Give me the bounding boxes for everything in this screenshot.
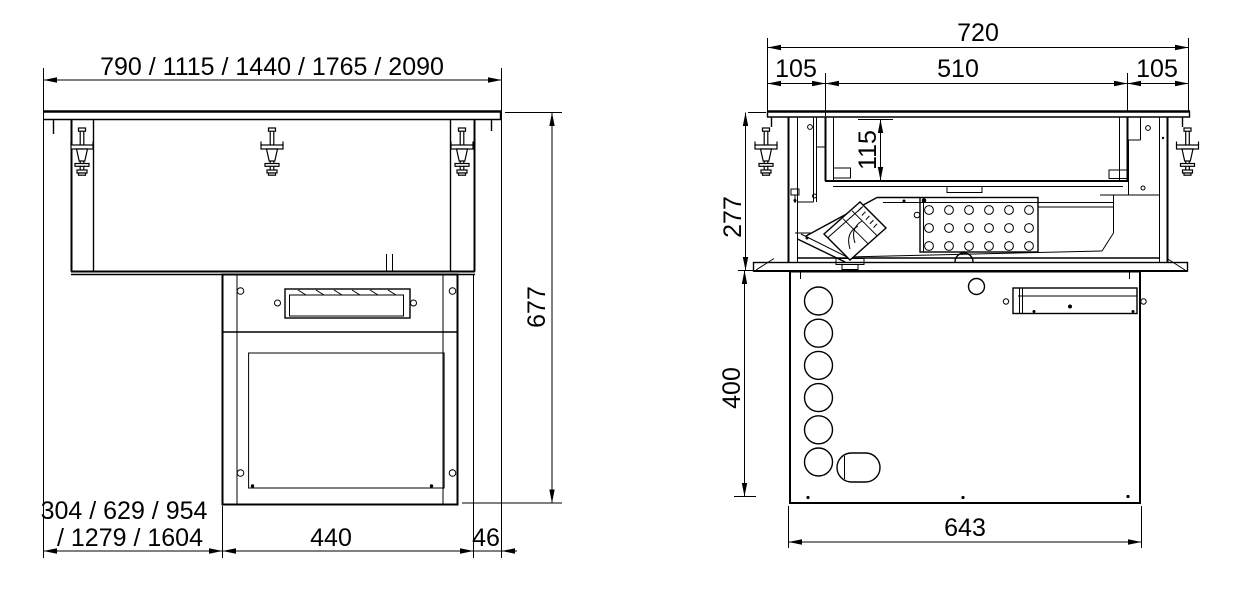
dim-front-left-width-label-line1: 304 / 629 / 954 (41, 497, 208, 525)
side-view: 720 105 510 105 115 277 400 643 (718, 19, 1199, 548)
side-view-dimension-lines (734, 38, 1189, 548)
dim-well-depth-label: 115 (854, 130, 882, 170)
dim-total-depth-label: 720 (957, 19, 999, 47)
side-base-section (790, 272, 1140, 504)
dim-front-flange-label: 105 (775, 55, 817, 83)
side-evaporator-plate (920, 198, 1038, 253)
dim-rear-flange-label: 105 (1136, 55, 1178, 83)
technical-drawing: 790 / 1115 / 1440 / 1765 / 2090 677 304 … (0, 0, 1241, 603)
mounting-clamp-right (451, 128, 473, 175)
dim-front-width-label: 790 / 1115 / 1440 / 1765 / 2090 (100, 53, 444, 81)
dim-lower-height-label: 400 (718, 367, 746, 409)
dim-front-left-width-label-line2: / 1279 / 1604 (57, 524, 203, 552)
drawing-canvas: 790 / 1115 / 1440 / 1765 / 2090 677 304 … (0, 0, 1241, 603)
dim-base-depth-label: 643 (944, 514, 986, 542)
mounting-clamp-side-left (755, 128, 777, 175)
front-well-body (71, 120, 475, 275)
front-handle-recess (275, 289, 417, 318)
mounting-clamp-side-right (1177, 128, 1199, 175)
dim-vent-width-label: 440 (310, 524, 352, 552)
front-view: 790 / 1115 / 1440 / 1765 / 2090 677 304 … (41, 53, 562, 558)
side-electrical-box (1003, 288, 1146, 314)
mounting-clamp-left (71, 128, 93, 175)
mounting-clamp-middle (261, 128, 283, 175)
side-upper-section (754, 117, 1188, 271)
vent-grille (249, 353, 445, 488)
dim-upper-height-label: 277 (719, 196, 747, 238)
dim-side-offset-label: 46 (472, 524, 500, 552)
dim-well-opening-label: 510 (937, 55, 979, 83)
side-fan-unit (806, 198, 927, 260)
dim-front-height-label: 677 (523, 286, 551, 328)
